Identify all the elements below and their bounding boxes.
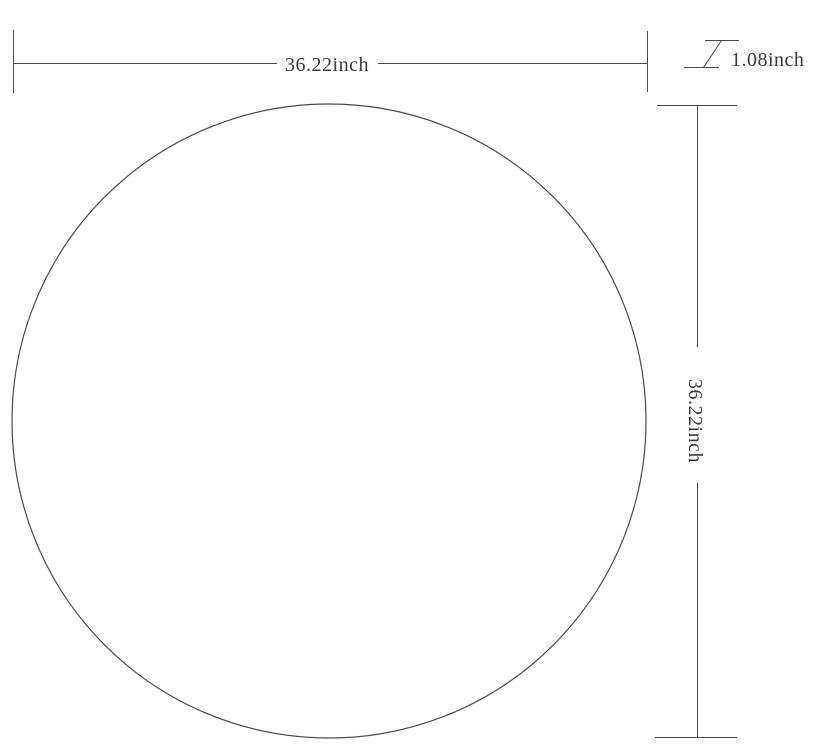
thickness-dimension-label: 1.08inch: [731, 49, 804, 71]
height-dimension: 36.22inch: [655, 106, 737, 738]
width-dimension-label: 36.22inch: [285, 54, 369, 76]
dimension-diagram: 36.22inch 1.08inch 36.22inch: [0, 0, 820, 754]
thickness-icon-diagonal-line: [704, 41, 722, 68]
diagram-svg: 36.22inch 1.08inch 36.22inch: [0, 0, 820, 754]
circle-outline: [12, 104, 646, 738]
width-dimension: 36.22inch: [13, 30, 648, 93]
thickness-callout: 1.08inch: [684, 41, 804, 72]
height-dimension-label: 36.22inch: [684, 379, 706, 463]
